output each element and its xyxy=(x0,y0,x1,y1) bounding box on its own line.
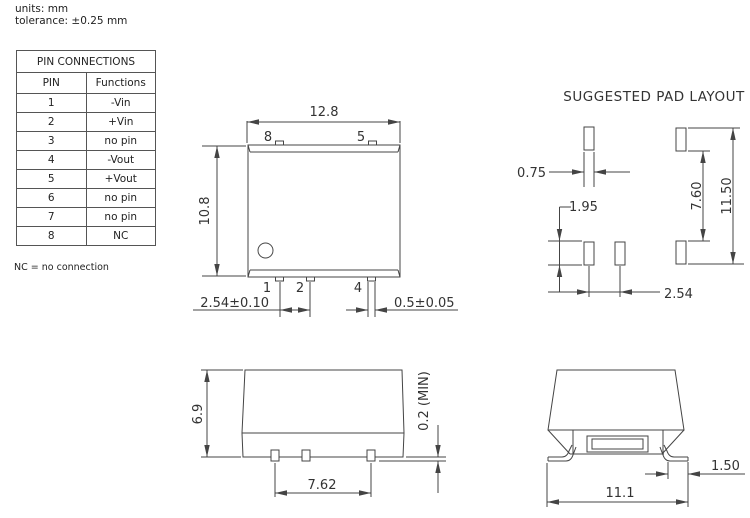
pin2-label: 2 xyxy=(296,281,304,296)
pin4-label: 4 xyxy=(354,281,362,296)
pin8-stub xyxy=(276,141,284,145)
end-view-right-lead xyxy=(660,445,688,461)
dim-pad-pitch-label: 2.54 xyxy=(664,287,693,302)
side-view-drawing: 6.9 0.2 (MIN) 7.62 xyxy=(191,370,446,497)
dim-outer-span-label: 11.50 xyxy=(720,177,735,214)
dim-standoff-label: 0.2 (MIN) xyxy=(417,371,432,431)
dim-inner-span-label: 7.60 xyxy=(690,182,705,211)
dim-end-view-width: 11.1 xyxy=(547,463,688,507)
top-view-drawing: 8 5 1 2 4 xyxy=(248,130,400,296)
dim-height-label: 10.8 xyxy=(198,197,213,226)
drawing-svg: 8 5 1 2 4 12.8 10.8 2.54±0.10 xyxy=(0,0,750,518)
end-view-drawing: 1.50 11.1 xyxy=(547,370,745,507)
pad-pin2 xyxy=(615,242,625,265)
dim-pad-height-label: 1.95 xyxy=(569,200,598,215)
technical-drawing-canvas: units: mm tolerance: ±0.25 mm PIN CONNEC… xyxy=(0,0,750,518)
pad-pin8 xyxy=(584,127,594,150)
pin1-stub xyxy=(276,277,284,281)
dim-pin-span-label: 7.62 xyxy=(308,478,337,493)
dim-pitch-label: 2.54±0.10 xyxy=(200,296,269,311)
side-pin4 xyxy=(367,450,375,461)
dim-lead-length: 1.50 xyxy=(645,459,745,507)
pin5-label: 5 xyxy=(357,130,365,145)
dim-top-view-height: 10.8 xyxy=(198,146,246,276)
pad-layout-title: SUGGESTED PAD LAYOUT xyxy=(563,89,745,105)
pin1-label: 1 xyxy=(263,281,271,296)
dim-pad-width-label: 0.75 xyxy=(517,166,546,181)
pad-pin4 xyxy=(676,241,686,264)
dim-width-label: 12.8 xyxy=(310,105,339,120)
pin1-indicator-circle xyxy=(258,243,273,258)
pad-pin5 xyxy=(676,128,686,151)
end-view-body xyxy=(548,370,684,430)
dim-pad-pitch: 2.54 xyxy=(548,266,693,302)
side-pin1 xyxy=(271,450,279,461)
dim-pin-width-label: 0.5±0.05 xyxy=(394,296,455,311)
pin2-stub xyxy=(307,277,315,281)
pad-pin1 xyxy=(584,242,594,265)
dim-pad-width: 0.75 xyxy=(517,152,630,187)
pin8-label: 8 xyxy=(264,130,272,145)
dim-pin-pitch: 2.54±0.10 xyxy=(193,282,310,317)
pad-layout-drawing: SUGGESTED PAD LAYOUT 0.75 1.95 xyxy=(517,89,745,302)
side-view-body xyxy=(242,370,404,457)
package-outline xyxy=(248,145,400,277)
dim-side-height-label: 6.9 xyxy=(191,404,206,425)
pin5-stub xyxy=(369,141,377,145)
end-view-slot-outer xyxy=(587,436,648,452)
dim-pad-inner-span: 7.60 xyxy=(688,151,710,241)
dim-end-width-label: 11.1 xyxy=(606,486,635,501)
end-view-slot-inner xyxy=(592,439,643,449)
dim-lead-length-label: 1.50 xyxy=(711,459,740,474)
dim-standoff: 0.2 (MIN) xyxy=(379,371,446,493)
dim-pin-width: 0.5±0.05 xyxy=(346,282,458,317)
dim-side-height: 6.9 xyxy=(191,370,243,457)
end-view-left-lead xyxy=(548,445,576,461)
side-pin2 xyxy=(302,450,310,461)
pin4-stub xyxy=(368,277,376,281)
dim-pin-span: 7.62 xyxy=(275,463,371,497)
